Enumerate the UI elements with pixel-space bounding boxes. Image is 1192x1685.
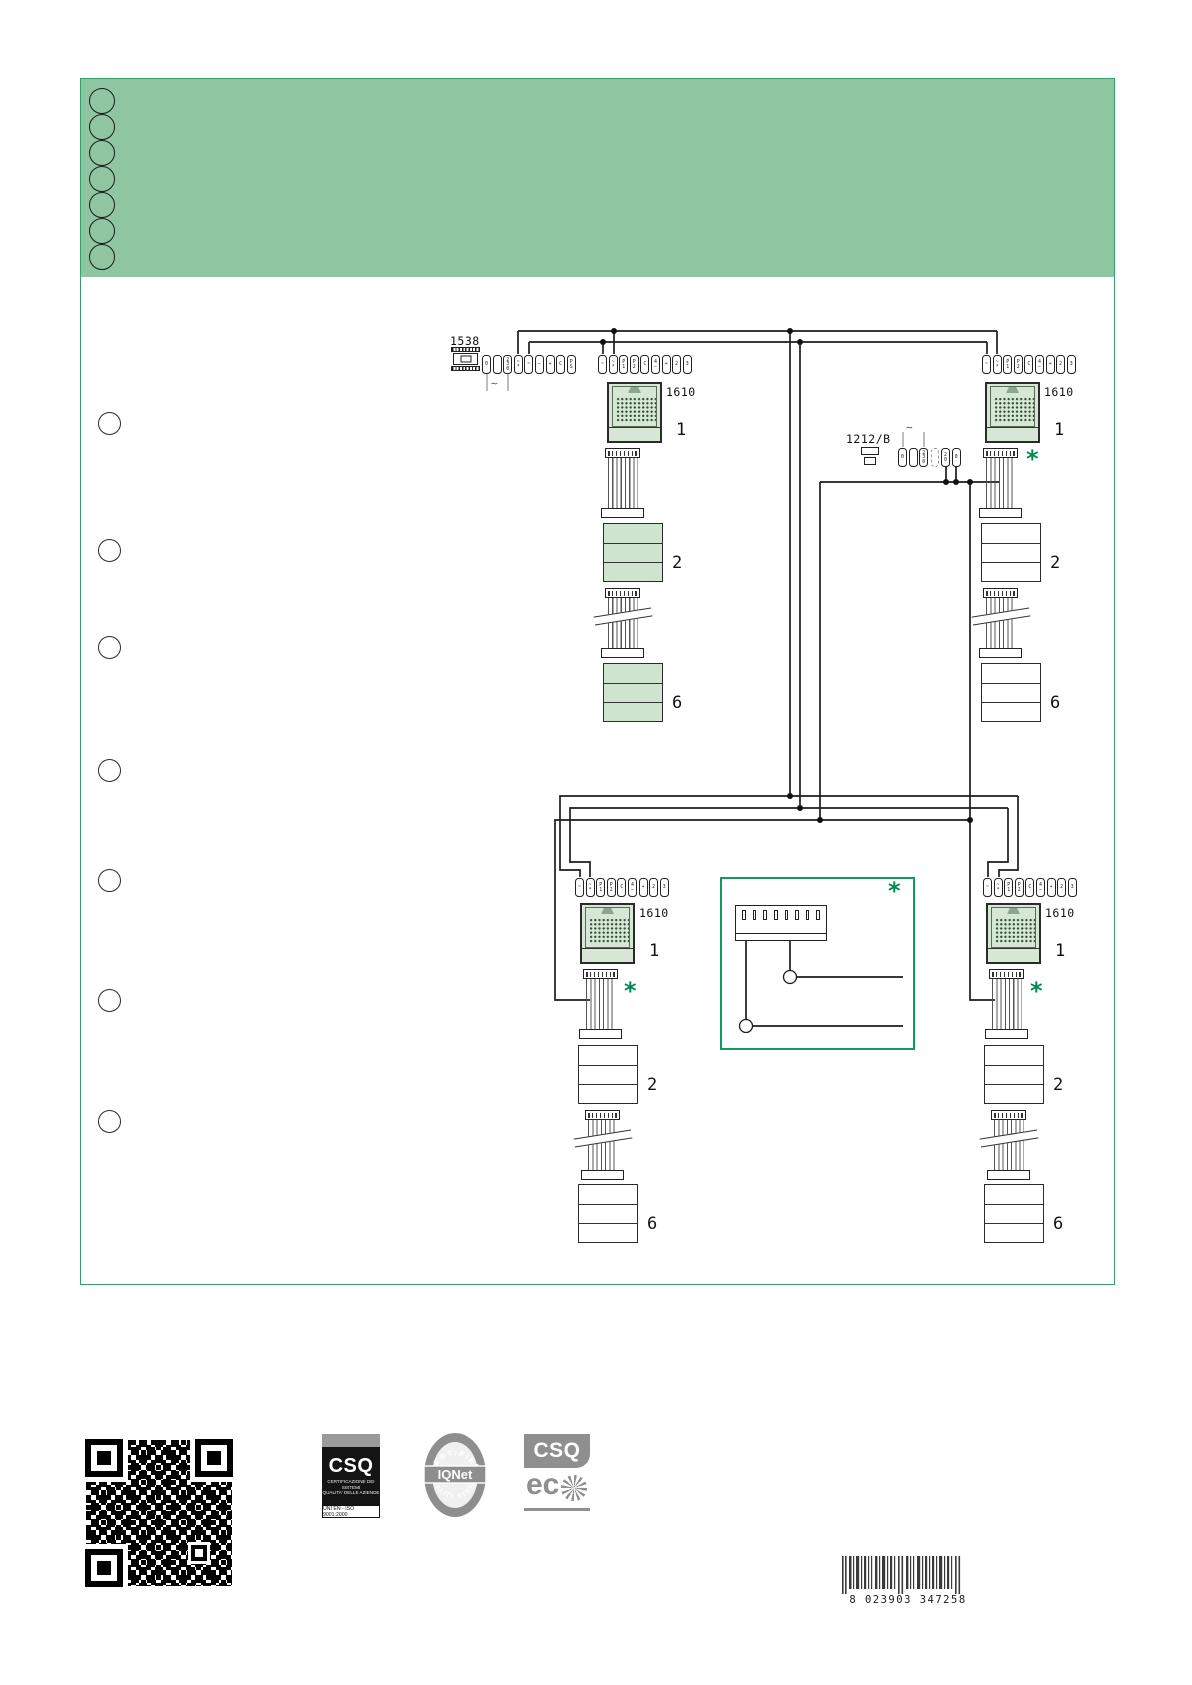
terminal: C: [1024, 355, 1033, 374]
step-circle: [98, 636, 121, 659]
terminal: ~ *: [993, 355, 1002, 374]
unit-count: 1: [649, 941, 659, 961]
terminal: C: [1025, 878, 1034, 897]
note-asterisk: *: [624, 984, 637, 998]
eco-flower-icon: [561, 1475, 587, 1501]
unit-count: 2: [1053, 1075, 1063, 1095]
terminal: ~: [983, 878, 992, 897]
riser-cable-continued: [581, 1110, 624, 1180]
terminal: P 1: [619, 355, 628, 374]
binder-rings: [89, 88, 115, 270]
terminal: −: [535, 355, 544, 374]
riser-terminal-strip: ~~ *P 1P 2C4 −+23: [982, 355, 1076, 374]
terminal: +: [546, 355, 555, 374]
unit-count: 2: [672, 553, 682, 573]
transformer-icon: [860, 447, 880, 469]
csq-eco-name: CSQ: [524, 1434, 590, 1468]
terminal: 2 0: [941, 448, 950, 467]
terminal: ~: [598, 355, 607, 374]
terminal: ~: [575, 878, 584, 897]
terminal: C: [556, 355, 565, 374]
step-circle: [98, 539, 121, 562]
handset-unit: [984, 1045, 1044, 1104]
riser-cable: [979, 448, 1022, 518]
note-asterisk: *: [1030, 984, 1043, 998]
binder-ring: [89, 88, 115, 114]
handset-unit: [578, 1045, 638, 1104]
riser-terminal-strip: ~~ *P 1P 2C4 −+23: [598, 355, 692, 374]
psu-1212b-label: 1212/B: [846, 432, 891, 446]
entrance-panel-1610: [985, 382, 1040, 443]
terminal: ~: [982, 355, 991, 374]
terminal: P 2: [1015, 878, 1024, 897]
terminal: ~: [524, 355, 533, 374]
terminal: P 2: [1014, 355, 1023, 374]
qr-code: [81, 1435, 237, 1591]
terminal: 4 −: [651, 355, 660, 374]
handset-unit: [578, 1184, 638, 1243]
terminal: +: [1047, 878, 1056, 897]
unit-count: 1: [676, 420, 686, 440]
binder-ring: [89, 166, 115, 192]
terminal: 0: [898, 448, 907, 467]
riser-terminal-strip: ~~ *P 1P 2C4 −+23: [575, 878, 669, 897]
psu-1538-label: 1538: [450, 334, 480, 348]
terminal: ~ *: [586, 878, 595, 897]
barcode: [842, 1556, 974, 1594]
handset-unit: [603, 663, 663, 722]
terminal: 3: [683, 355, 692, 374]
terminal: P 2: [630, 355, 639, 374]
terminal: +: [639, 878, 648, 897]
terminal: +: [662, 355, 671, 374]
unit-model-label: 1610: [1044, 385, 1074, 399]
unit-count: 1: [1054, 420, 1064, 440]
unit-count: 6: [672, 693, 682, 713]
step-circle: [98, 869, 121, 892]
psu-1212b-input-terminals: 02 3 0: [898, 448, 928, 467]
connector-block: [735, 905, 827, 941]
ac-symbol: ∼: [906, 421, 913, 434]
terminal: P S: [567, 355, 576, 374]
unit-count: 6: [1053, 1214, 1063, 1234]
binder-ring: [89, 244, 115, 270]
unit-count: 2: [647, 1075, 657, 1095]
handset-unit: [981, 663, 1041, 722]
note-asterisk: *: [1026, 452, 1039, 466]
document-page: 1538 02 3 0~ *~−+CP S ∼ 1212/B 02 3 0 2 …: [0, 0, 1192, 1685]
csq-line1: CERTIFICAZIONE DEI SISTEMI: [322, 1479, 380, 1490]
speaker-grille: [616, 397, 656, 422]
unit-count: 1: [1055, 941, 1065, 961]
terminal: 4 −: [1035, 355, 1044, 374]
terminal: 3: [1068, 878, 1077, 897]
entrance-panel-1610: [580, 903, 635, 964]
terminal: P 2: [607, 878, 616, 897]
note-asterisk: *: [888, 884, 901, 898]
unit-count: 6: [647, 1214, 657, 1234]
step-circle: [98, 759, 121, 782]
terminal: ~ *: [609, 355, 618, 374]
terminal: ~ *: [994, 878, 1003, 897]
ac-symbol: ∼: [491, 377, 498, 390]
riser-cable: [579, 969, 622, 1039]
terminal: P 1: [596, 878, 605, 897]
speaker-grille: [995, 918, 1035, 943]
terminal: [493, 355, 502, 374]
unit-model-label: 1610: [1045, 906, 1075, 920]
terminal: 2: [1057, 878, 1066, 897]
riser-cable-continued: [987, 1110, 1030, 1180]
unit-count: 2: [1050, 553, 1060, 573]
terminal: C: [640, 355, 649, 374]
csq-name: CSQ: [329, 1456, 374, 1476]
unit-count: 6: [1050, 693, 1060, 713]
barcode-digits: 8 023903 347258: [842, 1594, 974, 1606]
terminal: [909, 448, 918, 467]
connection-detail-inset: [720, 877, 915, 1050]
riser-cable: [985, 969, 1028, 1039]
terminal: 4 −: [1036, 878, 1045, 897]
binder-ring: [89, 218, 115, 244]
terminal: +: [1046, 355, 1055, 374]
binder-ring: [89, 140, 115, 166]
header-band: [81, 79, 1114, 277]
csq-line2: QUALITA' DELLE AZIENDE: [322, 1490, 380, 1496]
step-circle: [98, 989, 121, 1012]
terminal: 2 3 0: [919, 448, 928, 467]
binder-ring: [89, 192, 115, 218]
terminal: 3: [660, 878, 669, 897]
step-circle: [98, 412, 121, 435]
terminal: 2: [649, 878, 658, 897]
unit-model-label: 1610: [666, 385, 696, 399]
terminal: 2: [672, 355, 681, 374]
unit-model-label: 1610: [639, 906, 669, 920]
terminal: 3: [1067, 355, 1076, 374]
step-circle: [98, 1110, 121, 1133]
iqnet-certification-logo: CERTIFIED QUALITY SYSTEM IQNet: [421, 1431, 489, 1519]
entrance-panel-1610: [607, 382, 662, 443]
csq-eco-logo: CSQ ec: [524, 1434, 590, 1516]
terminal: 2 3 0: [503, 355, 512, 374]
qr-finder-icon: [195, 1439, 233, 1477]
terminal: P 1: [1003, 355, 1012, 374]
transformer-icon: [451, 347, 480, 373]
terminal: P 1: [1004, 878, 1013, 897]
csq-iso-label: UNI EN - ISO 9001:2000: [322, 1505, 380, 1518]
qr-finder-icon: [85, 1549, 123, 1587]
binder-ring: [89, 114, 115, 140]
csq-certification-logo: CSQ CERTIFICAZIONE DEI SISTEMI QUALITA' …: [322, 1434, 380, 1518]
terminal: 4 −: [628, 878, 637, 897]
qr-finder-icon: [85, 1439, 123, 1477]
handset-unit: [981, 523, 1041, 582]
riser-cable-continued: [979, 588, 1022, 658]
riser-cable: [601, 448, 644, 518]
handset-unit: [984, 1184, 1044, 1243]
terminal-spacer: [931, 448, 939, 467]
csq-eco-text: ec: [526, 1470, 559, 1500]
terminal: 0: [952, 448, 961, 467]
iqnet-name: IQNet: [438, 1467, 473, 1482]
riser-cable-continued: [601, 588, 644, 658]
qr-alignment-icon: [191, 1545, 207, 1561]
speaker-grille: [589, 918, 629, 943]
terminal: C: [617, 878, 626, 897]
entrance-panel-1610: [986, 903, 1041, 964]
handset-unit: [603, 523, 663, 582]
terminal: ~ *: [514, 355, 523, 374]
psu-1212b-output-terminals: 2 00: [941, 448, 961, 467]
psu-1538-terminal-strip: 02 3 0~ *~−+CP S: [482, 355, 576, 374]
terminal: 0: [482, 355, 491, 374]
terminal: 2: [1056, 355, 1065, 374]
riser-terminal-strip: ~~ *P 1P 2C4 −+23: [983, 878, 1077, 897]
speaker-grille: [994, 397, 1034, 422]
